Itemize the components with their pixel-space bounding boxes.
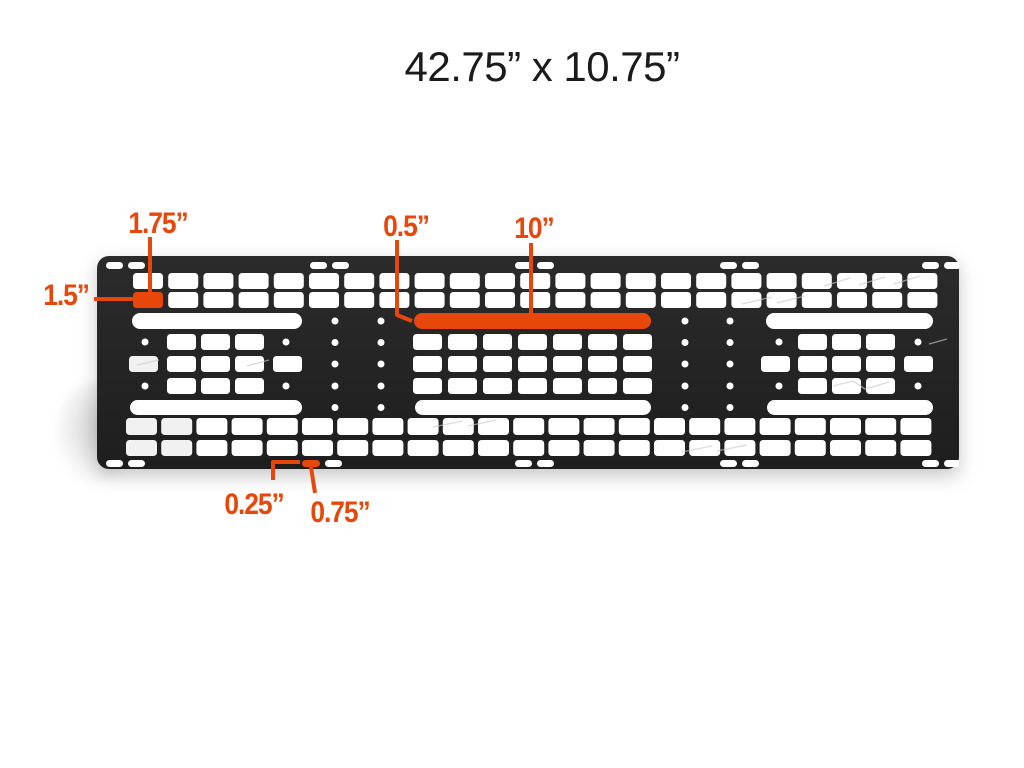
slot: [235, 378, 264, 394]
slot: [904, 356, 933, 372]
slot: [626, 273, 656, 289]
mounting-hole: [332, 318, 339, 325]
long-slot: [132, 313, 302, 329]
slot: [555, 273, 585, 289]
edge-slot: [128, 262, 145, 269]
mounting-hole: [378, 318, 385, 325]
mounting-hole: [727, 339, 734, 346]
slot: [408, 440, 439, 456]
slot: [798, 378, 827, 394]
edge-slot: [537, 262, 554, 269]
slot: [520, 273, 550, 289]
leader-edge-slot-width: [311, 467, 315, 493]
slot: [553, 334, 582, 350]
slot: [518, 378, 547, 394]
slot: [588, 378, 617, 394]
mounting-hole: [776, 383, 783, 390]
mounting-hole: [332, 361, 339, 368]
slot: [591, 273, 621, 289]
slot: [760, 440, 791, 456]
slot: [900, 418, 931, 435]
mounting-hole: [378, 383, 385, 390]
slot: [415, 273, 445, 289]
mounting-hole: [682, 404, 689, 411]
slot: [548, 440, 579, 456]
slot: [518, 334, 547, 350]
edge-slot: [515, 262, 532, 269]
slot: [161, 418, 192, 435]
slot: [832, 356, 861, 372]
mounting-hole: [332, 404, 339, 411]
edge-slot: [742, 262, 759, 269]
slot: [448, 334, 477, 350]
callout-long-slot-offset: 0.5”: [383, 212, 429, 242]
mounting-hole: [378, 404, 385, 411]
slot: [302, 418, 333, 435]
mounting-hole: [283, 339, 290, 346]
slot: [724, 418, 755, 435]
mounting-hole: [727, 404, 734, 411]
mounting-hole: [776, 339, 783, 346]
slot: [379, 292, 409, 308]
slot: [413, 334, 442, 350]
slot: [548, 418, 579, 435]
slot: [513, 440, 544, 456]
slot: [767, 292, 797, 308]
edge-slot: [310, 262, 327, 269]
mounting-hole: [283, 383, 290, 390]
slot: [126, 440, 157, 456]
slot: [555, 292, 585, 308]
slot: [167, 378, 196, 394]
edge-slot: [325, 460, 342, 467]
slot: [802, 292, 832, 308]
slot: [344, 273, 374, 289]
slot: [696, 292, 726, 308]
slot: [274, 273, 304, 289]
slot: [619, 418, 650, 435]
mounting-hole: [727, 318, 734, 325]
slot: [168, 292, 198, 308]
edge-slot: [742, 460, 759, 467]
slot: [168, 273, 198, 289]
long-slot: [130, 400, 302, 415]
edge-slot: [944, 262, 959, 269]
slot: [553, 356, 582, 372]
slot: [167, 334, 196, 350]
slot: [372, 440, 403, 456]
slot: [126, 418, 157, 435]
slot: [832, 334, 861, 350]
edge-slot: [106, 262, 123, 269]
highlighted-slot-1-75in: [133, 292, 163, 308]
slot: [584, 418, 615, 435]
slot: [450, 273, 480, 289]
mounting-hole: [727, 361, 734, 368]
slot: [201, 378, 230, 394]
slot: [795, 440, 826, 456]
slot: [623, 356, 652, 372]
slot: [302, 440, 333, 456]
slot: [513, 418, 544, 435]
edge-slot: [944, 460, 959, 467]
slot: [907, 292, 937, 308]
slot: [413, 356, 442, 372]
slot: [865, 418, 896, 435]
slot: [588, 356, 617, 372]
long-slot: [766, 313, 933, 329]
slot: [239, 273, 269, 289]
mounting-hole: [915, 339, 922, 346]
mounting-hole: [142, 383, 149, 390]
slot: [337, 440, 368, 456]
slot: [413, 378, 442, 394]
slot: [309, 273, 339, 289]
slot: [767, 273, 797, 289]
slot: [379, 273, 409, 289]
edge-slot: [720, 460, 737, 467]
slot: [344, 292, 374, 308]
slot: [478, 440, 509, 456]
mounting-hole: [332, 339, 339, 346]
slot: [448, 356, 477, 372]
mounting-hole: [142, 339, 149, 346]
slot: [830, 418, 861, 435]
slot: [372, 418, 403, 435]
slot: [872, 292, 902, 308]
highlighted-edge-slot-0-75in: [302, 460, 320, 467]
callout-slot-height: 1.5”: [43, 281, 89, 311]
callout-slot-pitch: 1.75”: [128, 209, 187, 239]
mounting-hole: [378, 361, 385, 368]
slot: [591, 292, 621, 308]
slot: [654, 440, 685, 456]
dimensions-title: 42.75” x 10.75”: [404, 44, 679, 90]
slot: [235, 334, 264, 350]
slot: [832, 378, 861, 394]
edge-slot: [720, 262, 737, 269]
slot: [443, 418, 474, 435]
slot: [866, 378, 895, 394]
slot: [443, 440, 474, 456]
mounting-hole: [682, 361, 689, 368]
slot: [232, 440, 263, 456]
slot: [483, 356, 512, 372]
slot: [696, 273, 726, 289]
long-slot: [415, 400, 651, 415]
slot: [760, 418, 791, 435]
slot: [267, 418, 298, 435]
mounting-hole: [332, 383, 339, 390]
slot: [273, 356, 302, 372]
mounting-hole: [727, 383, 734, 390]
callout-long-slot-length: 10”: [514, 214, 553, 244]
long-slot: [767, 400, 933, 415]
slot: [161, 440, 192, 456]
slot: [623, 378, 652, 394]
mounting-hole: [682, 339, 689, 346]
slot: [485, 273, 515, 289]
callout-edge-slot-width: 0.75”: [310, 498, 369, 528]
slot: [485, 292, 515, 308]
mounting-hole: [682, 318, 689, 325]
slot: [235, 356, 264, 372]
slot: [907, 273, 937, 289]
slot: [239, 292, 269, 308]
slot: [866, 356, 895, 372]
edge-slot: [128, 460, 145, 467]
slot: [661, 273, 691, 289]
slot: [584, 440, 615, 456]
edge-slot: [332, 262, 349, 269]
slot: [196, 418, 227, 435]
slot: [626, 292, 656, 308]
slot: [553, 378, 582, 394]
slot: [802, 273, 832, 289]
slot: [654, 418, 685, 435]
mounting-hole: [378, 339, 385, 346]
slot: [203, 292, 233, 308]
slot: [837, 292, 867, 308]
slot: [866, 334, 895, 350]
slot: [309, 292, 339, 308]
slot: [133, 273, 163, 289]
edge-slot: [537, 460, 554, 467]
slot: [483, 334, 512, 350]
edge-slot: [922, 262, 939, 269]
slot: [203, 273, 233, 289]
edge-slot: [515, 460, 532, 467]
slot: [865, 440, 896, 456]
slot: [201, 356, 230, 372]
slot: [196, 440, 227, 456]
slot: [731, 273, 761, 289]
callout-edge-slot-gap: 0.25”: [224, 490, 283, 520]
slot: [518, 356, 547, 372]
edge-slot: [106, 460, 123, 467]
slot: [450, 292, 480, 308]
slot: [689, 418, 720, 435]
molle-panel-image: [97, 256, 959, 469]
slot: [448, 378, 477, 394]
slot: [798, 356, 827, 372]
slot: [619, 440, 650, 456]
slot: [872, 273, 902, 289]
highlighted-long-slot-10in: [414, 313, 651, 329]
slot: [588, 334, 617, 350]
slot: [520, 292, 550, 308]
mounting-hole: [915, 383, 922, 390]
slot: [232, 418, 263, 435]
product-dimension-diagram: 42.75” x 10.75” 1.75” 1.5” 0.5” 10” 0.25…: [0, 0, 1024, 768]
slot: [623, 334, 652, 350]
slot: [661, 292, 691, 308]
slot: [761, 356, 790, 372]
slot: [798, 334, 827, 350]
slot: [167, 356, 196, 372]
slot: [900, 440, 931, 456]
slot: [267, 440, 298, 456]
slot: [274, 292, 304, 308]
mounting-hole: [682, 383, 689, 390]
edge-slot: [922, 460, 939, 467]
slot: [795, 418, 826, 435]
slot: [483, 378, 512, 394]
slot: [337, 418, 368, 435]
slot: [201, 334, 230, 350]
slot: [830, 440, 861, 456]
slot: [415, 292, 445, 308]
